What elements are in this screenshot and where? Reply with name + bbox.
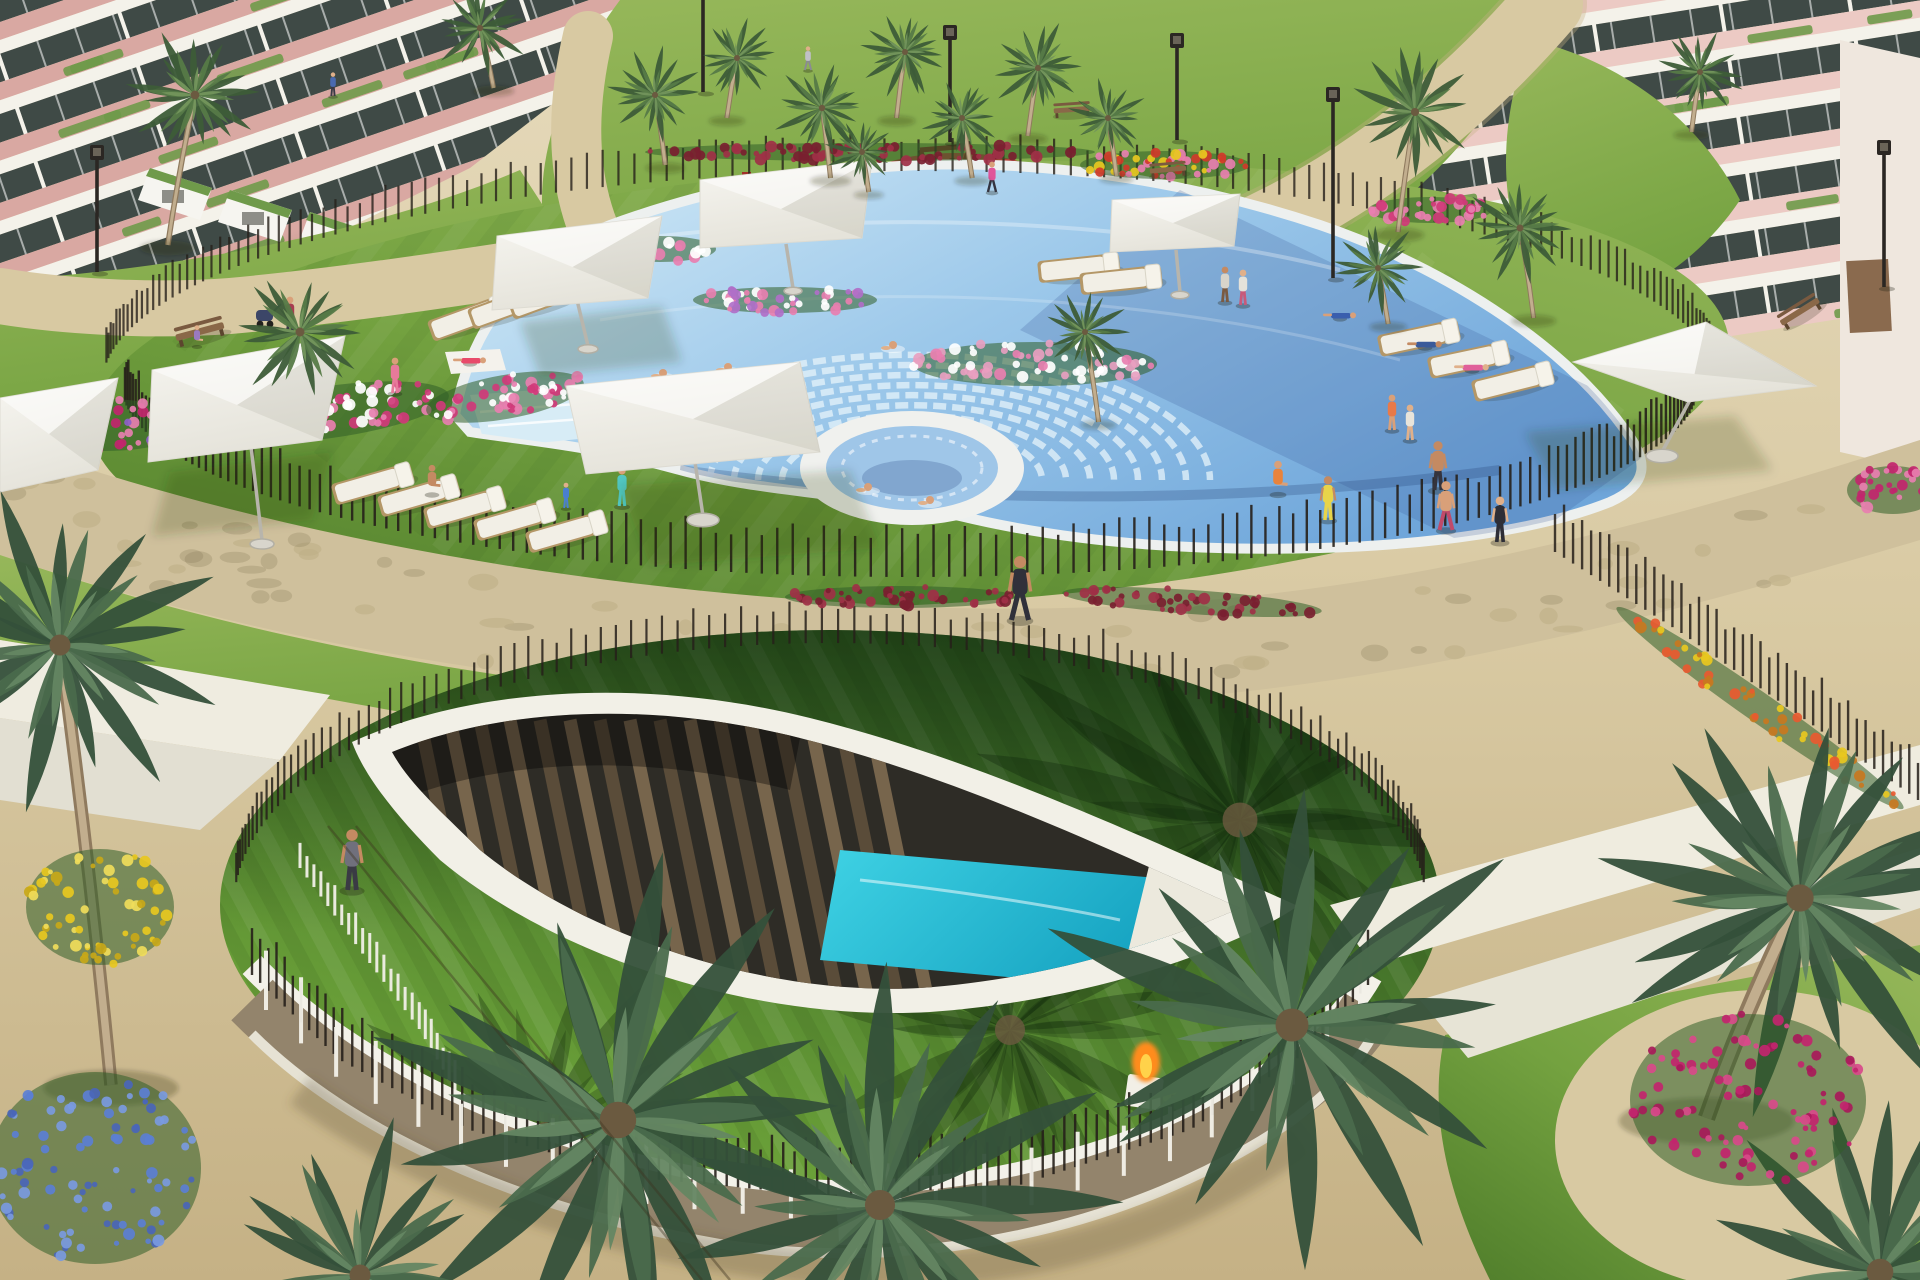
flame-core xyxy=(1140,1054,1152,1078)
right-building-end-wall xyxy=(1840,40,1920,470)
scene-canvas xyxy=(0,0,1920,1280)
pool-complex-render xyxy=(0,0,1920,1280)
